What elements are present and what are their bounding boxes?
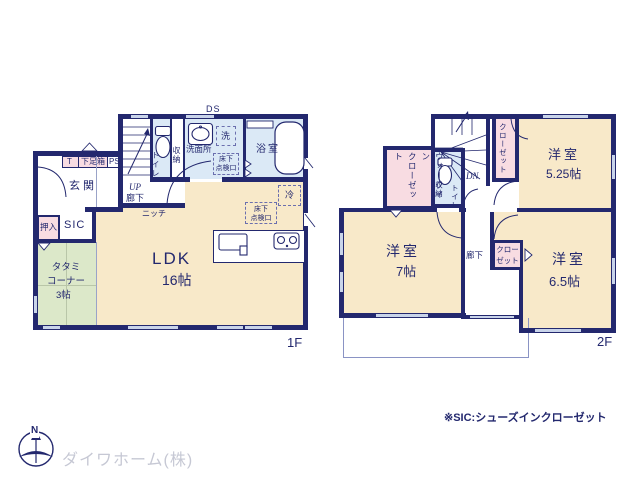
wall — [243, 114, 246, 182]
wall — [339, 208, 344, 318]
wall — [461, 148, 465, 210]
line-ldk-tatami — [96, 242, 97, 327]
floorplan-canvas: DS トイレ 収納 洗面所 洗 床下 点検口 浴室 冷 床下 点検口 T 下足箱… — [0, 0, 640, 480]
entrance-step-marker — [82, 143, 97, 151]
wall — [222, 177, 308, 182]
door-arc — [38, 167, 66, 197]
label-bedroom3-size: 6.5帖 — [549, 274, 580, 290]
window — [128, 326, 178, 329]
label-bedroom3: 洋室 — [552, 251, 586, 269]
label-hallway-2f: 廊下 — [466, 250, 483, 261]
label-floor-2f: 2F — [597, 334, 612, 350]
wall — [492, 178, 519, 182]
label-bedroom2: 洋室 — [386, 243, 420, 261]
wall — [85, 207, 123, 212]
window — [612, 258, 615, 284]
window — [340, 272, 343, 292]
stairs-1f-icon — [123, 127, 150, 175]
label-hallway-1f: 廊下 — [126, 193, 144, 204]
balcony — [343, 318, 529, 358]
label-toilet-1f: トイレ — [150, 151, 160, 178]
label-genkan: 玄関 — [69, 180, 97, 194]
label-ps: PS — [109, 157, 120, 167]
kitchen-counter — [213, 230, 305, 263]
label-bedroom1-size: 5.25帖 — [546, 167, 581, 182]
room-bedroom-525 — [519, 119, 611, 210]
label-storage-1f: 収納 — [171, 146, 181, 164]
wall — [486, 114, 490, 186]
window — [186, 115, 214, 118]
door-gap — [304, 158, 308, 169]
window — [340, 233, 343, 255]
label-sic: SIC — [64, 219, 85, 233]
wall — [517, 208, 611, 212]
label-bath: 浴室 — [256, 144, 280, 157]
label-ldk: LDK — [152, 248, 191, 269]
wall — [33, 151, 122, 156]
window — [612, 155, 615, 179]
label-ldk-size: 16帖 — [162, 272, 192, 290]
window — [535, 329, 581, 332]
label-closet-small: クロー ゼット — [494, 245, 521, 266]
label-up: UP — [129, 182, 141, 193]
wall — [519, 270, 523, 332]
company-name: ダイワホーム(株) — [62, 451, 193, 471]
label-tatami-corner: タタミ コーナー — [38, 261, 94, 289]
window — [34, 296, 37, 313]
wall — [92, 212, 96, 242]
door-arc — [463, 189, 478, 207]
wall — [383, 146, 387, 210]
window — [543, 115, 588, 118]
wall — [344, 208, 437, 212]
window — [131, 115, 148, 118]
label-underfloor-wash: 床下 点検口 — [213, 155, 239, 174]
wall — [183, 114, 185, 182]
label-ds: DS — [206, 104, 221, 115]
wall — [433, 114, 616, 119]
door-gap — [304, 213, 308, 226]
stairs-up-arrow-icon — [128, 132, 148, 174]
window — [217, 326, 243, 329]
door-arc — [494, 181, 518, 205]
sic-note: ※SIC:シューズインクローゼット — [444, 412, 607, 426]
label-dn: DN — [466, 171, 479, 182]
label-washroom: 洗面所 — [186, 144, 212, 155]
wall — [492, 116, 496, 182]
label-underfloor-ldk: 床下 点検口 — [245, 205, 277, 224]
window — [245, 326, 272, 329]
label-toilet-2f: トイレ — [450, 184, 459, 210]
label-shoe-box: 下足箱 — [81, 157, 105, 167]
label-oshiire: 押入 — [40, 222, 57, 233]
window — [43, 326, 60, 329]
wall — [611, 114, 616, 333]
label-closet-2f: クローゼット — [498, 123, 507, 174]
wall — [383, 146, 435, 150]
label-niche: ニッチ — [142, 209, 166, 219]
wall — [461, 212, 465, 315]
room-bedroom-7 — [344, 212, 461, 313]
compass-north-label: N — [30, 425, 39, 438]
label-floor-1f: 1F — [287, 335, 302, 351]
wall — [515, 116, 519, 182]
window — [376, 314, 428, 317]
label-bedroom2-size: 7帖 — [396, 264, 416, 280]
label-t-box: T — [67, 157, 72, 167]
label-bedroom1: 洋室 — [548, 147, 580, 163]
label-storage-2f: 収納 — [434, 181, 443, 198]
label-laundry: 洗 — [221, 131, 230, 142]
label-tatami-size: 3帖 — [56, 290, 71, 302]
wall — [36, 239, 96, 243]
room-ldk — [96, 208, 306, 327]
window — [470, 316, 514, 318]
label-fridge: 冷 — [285, 190, 294, 201]
